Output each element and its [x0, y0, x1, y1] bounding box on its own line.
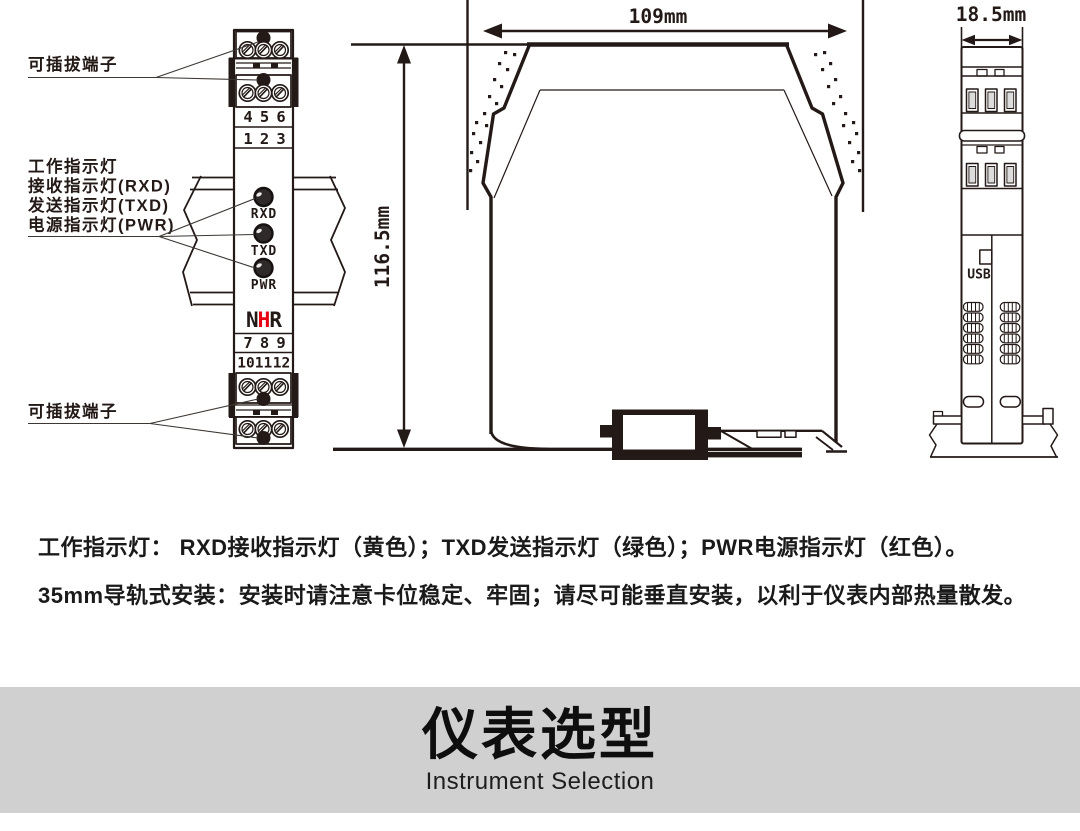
- label-txd-indicator: 发送指示灯(TXD): [27, 195, 170, 215]
- dim-depth-label: 18.5mm: [956, 3, 1026, 26]
- brand-logo: NHR: [246, 308, 282, 332]
- arrowhead-right-icon: [1009, 35, 1023, 45]
- device-profile: [483, 45, 843, 450]
- terminal-number: 12: [273, 356, 290, 372]
- dimension-width: 109mm: [483, 5, 847, 39]
- front-view: 4 5 6 1 2 3 RXD TXD PWR NHR 7 8 9 10: [27, 30, 345, 448]
- end-body: [960, 47, 1025, 444]
- led-label-rxd: RXD: [251, 207, 277, 222]
- label-pwr-indicator: 电源指示灯(PWR): [28, 215, 175, 235]
- terminal-number: 10: [237, 356, 254, 372]
- terminal-number: 4: [243, 108, 252, 126]
- led-label-txd: TXD: [251, 244, 277, 259]
- terminal-number: 9: [276, 334, 285, 352]
- led-label-pwr: PWR: [251, 278, 277, 293]
- note-mounting: 35mm导轨式安装：安装时请注意卡位稳定、牢固；请尽可能垂直安装，以利于仪表内部…: [38, 581, 1048, 610]
- callout-labels: 可插拔端子 工作指示灯 接收指示灯(RXD) 发送指示灯(TXD) 电源指示灯(…: [27, 42, 258, 438]
- arrowhead-down-icon: [397, 430, 411, 449]
- terminal-number: 11: [255, 356, 273, 372]
- dimension-drawing: 4 5 6 1 2 3 RXD TXD PWR NHR 7 8 9 10: [0, 0, 1080, 525]
- terminal-dot: [257, 431, 271, 445]
- arrowhead-up-icon: [397, 45, 411, 64]
- arrowhead-left-icon: [962, 35, 976, 45]
- section-subtitle: Instrument Selection: [426, 768, 655, 796]
- terminal-number: 2: [260, 130, 269, 148]
- terminal-number: 8: [260, 334, 269, 352]
- arrowhead-right-icon: [828, 24, 847, 39]
- terminal-numbers-bottom: 7 8 9 10 11 12: [234, 334, 293, 372]
- label-rxd-indicator: 接收指示灯(RXD): [28, 176, 171, 196]
- section-banner: 仪表选型 Instrument Selection: [0, 687, 1080, 813]
- end-view: 18.5mm USB: [930, 3, 1059, 457]
- terminal-number: 1: [243, 130, 252, 148]
- arrowhead-left-icon: [483, 24, 502, 39]
- dim-width-label: 109mm: [629, 5, 688, 28]
- din-clip: [600, 410, 847, 461]
- label-working-indicator: 工作指示灯: [28, 156, 118, 176]
- dimension-height: 116.5mm: [371, 45, 411, 448]
- label-pluggable-terminal-bottom: 可插拔端子: [28, 401, 118, 421]
- terminal-number: 3: [276, 130, 285, 148]
- technical-figure-page: 4 5 6 1 2 3 RXD TXD PWR NHR 7 8 9 10: [0, 0, 1080, 831]
- pwr-led-icon: [255, 259, 273, 277]
- side-view: 109mm 116.5mm: [333, 0, 863, 460]
- terminal-number-red: 5: [260, 108, 269, 126]
- rxd-led-icon: [255, 188, 273, 206]
- notes: 工作指示灯： RXD接收指示灯（黄色）；TXD发送指示灯（绿色）；PWR电源指示…: [38, 533, 1048, 629]
- label-indicators: 工作指示灯 接收指示灯(RXD) 发送指示灯(TXD) 电源指示灯(PWR): [27, 156, 175, 235]
- terminal-number: 7: [243, 334, 252, 352]
- dim-height-label: 116.5mm: [371, 206, 394, 288]
- terminal-dot: [257, 392, 271, 406]
- note-indicators: 工作指示灯： RXD接收指示灯（黄色）；TXD发送指示灯（绿色）；PWR电源指示…: [38, 533, 1048, 562]
- terminal-number-red: 6: [276, 108, 285, 126]
- section-title: 仪表选型: [422, 705, 658, 765]
- usb-label: USB: [967, 268, 991, 283]
- texture-dots: [469, 51, 861, 172]
- txd-led-icon: [255, 225, 273, 243]
- label-pluggable-terminal-top: 可插拔端子: [28, 54, 118, 74]
